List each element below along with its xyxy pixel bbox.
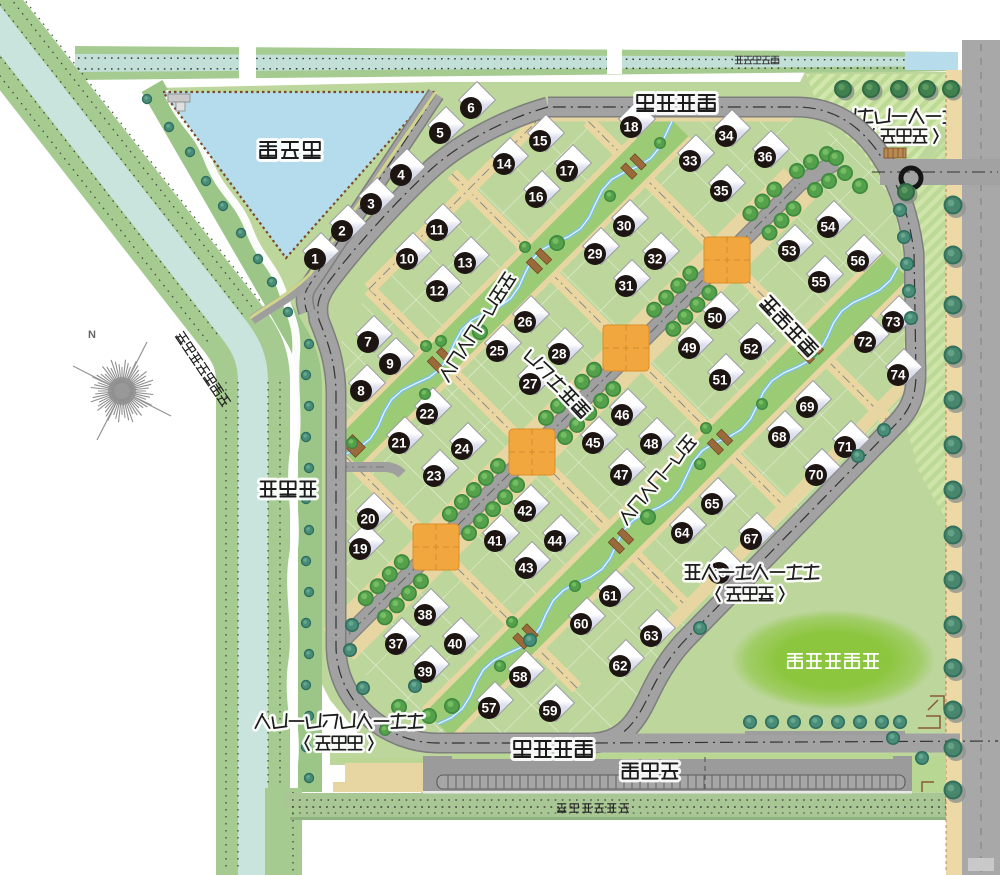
svg-text:60: 60 xyxy=(573,617,588,632)
svg-text:39: 39 xyxy=(417,665,432,680)
svg-text:8: 8 xyxy=(357,384,365,399)
svg-text:9: 9 xyxy=(386,357,394,372)
svg-text:2: 2 xyxy=(338,224,346,239)
svg-text:65: 65 xyxy=(704,497,720,512)
svg-text:55: 55 xyxy=(811,275,827,290)
svg-text:15: 15 xyxy=(532,134,548,149)
svg-text:34: 34 xyxy=(718,129,734,144)
svg-text:31: 31 xyxy=(618,279,634,294)
svg-text:40: 40 xyxy=(447,637,462,652)
svg-text:20: 20 xyxy=(360,512,375,527)
svg-text:28: 28 xyxy=(551,347,567,362)
svg-text:36: 36 xyxy=(757,150,773,165)
svg-text:62: 62 xyxy=(612,659,627,674)
svg-text:73: 73 xyxy=(885,315,901,330)
svg-text:44: 44 xyxy=(547,534,563,549)
svg-text:14: 14 xyxy=(496,157,512,172)
svg-text:72: 72 xyxy=(857,335,872,350)
svg-text:38: 38 xyxy=(417,608,433,623)
svg-text:3: 3 xyxy=(367,197,375,212)
svg-text:30: 30 xyxy=(616,219,631,234)
svg-text:10: 10 xyxy=(399,252,414,267)
svg-text:25: 25 xyxy=(489,344,505,359)
svg-text:70: 70 xyxy=(808,468,823,483)
svg-text:46: 46 xyxy=(614,408,630,423)
svg-text:27: 27 xyxy=(522,377,537,392)
svg-text:7: 7 xyxy=(364,335,372,350)
svg-text:45: 45 xyxy=(585,436,601,451)
svg-text:54: 54 xyxy=(820,220,836,235)
svg-text:68: 68 xyxy=(771,430,787,445)
svg-text:19: 19 xyxy=(352,542,367,557)
svg-text:18: 18 xyxy=(623,120,639,135)
svg-text:11: 11 xyxy=(430,223,445,238)
svg-text:57: 57 xyxy=(481,701,496,716)
svg-text:59: 59 xyxy=(542,704,557,719)
svg-text:21: 21 xyxy=(391,436,407,451)
svg-text:41: 41 xyxy=(487,534,503,549)
svg-text:69: 69 xyxy=(799,400,814,415)
svg-text:43: 43 xyxy=(518,561,534,576)
svg-text:64: 64 xyxy=(674,526,690,541)
svg-text:48: 48 xyxy=(643,437,659,452)
svg-text:6: 6 xyxy=(467,101,475,116)
svg-text:23: 23 xyxy=(426,469,442,484)
svg-text:71: 71 xyxy=(837,440,853,455)
svg-text:32: 32 xyxy=(647,252,662,267)
svg-text:47: 47 xyxy=(613,468,628,483)
svg-text:56: 56 xyxy=(850,254,866,269)
svg-text:63: 63 xyxy=(643,629,659,644)
svg-text:33: 33 xyxy=(682,154,698,169)
svg-text:22: 22 xyxy=(419,407,434,422)
svg-text:4: 4 xyxy=(397,168,405,183)
svg-text:61: 61 xyxy=(602,589,618,604)
svg-text:1: 1 xyxy=(311,252,319,267)
svg-text:53: 53 xyxy=(781,244,797,259)
svg-text:42: 42 xyxy=(517,504,532,519)
svg-text:58: 58 xyxy=(512,670,528,685)
svg-text:52: 52 xyxy=(743,342,758,357)
svg-text:49: 49 xyxy=(681,341,696,356)
svg-text:24: 24 xyxy=(454,442,470,457)
svg-text:51: 51 xyxy=(712,373,728,388)
svg-text:12: 12 xyxy=(429,284,444,299)
svg-text:N: N xyxy=(88,329,96,341)
svg-text:35: 35 xyxy=(713,184,729,199)
svg-text:50: 50 xyxy=(707,311,722,326)
svg-text:5: 5 xyxy=(436,126,444,141)
svg-text:17: 17 xyxy=(559,164,574,179)
svg-text:67: 67 xyxy=(743,532,758,547)
svg-text:37: 37 xyxy=(388,637,403,652)
svg-text:29: 29 xyxy=(587,247,602,262)
svg-text:74: 74 xyxy=(890,368,906,383)
svg-text:26: 26 xyxy=(517,315,533,330)
svg-text:13: 13 xyxy=(457,256,473,271)
svg-text:16: 16 xyxy=(528,190,544,205)
